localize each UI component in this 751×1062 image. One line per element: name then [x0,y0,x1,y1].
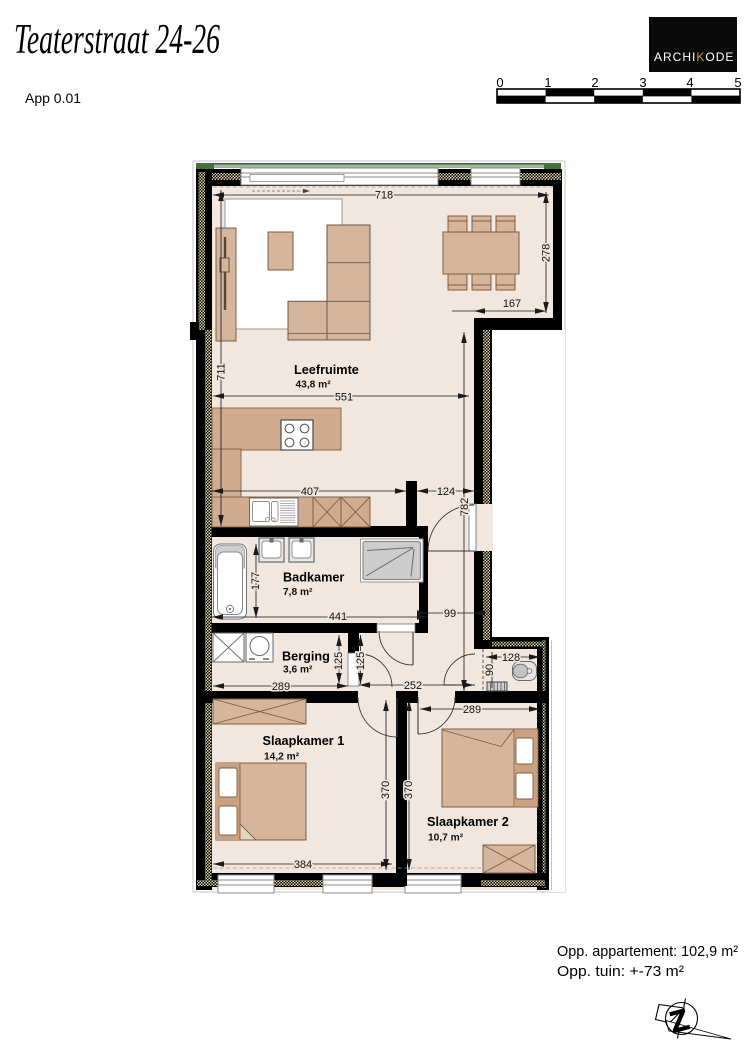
svg-text:124: 124 [437,486,455,498]
svg-text:177: 177 [250,572,262,590]
svg-text:0: 0 [496,75,503,90]
svg-text:252: 252 [404,680,422,692]
svg-text:407: 407 [301,486,319,498]
svg-text:Slaapkamer 1: Slaapkamer 1 [263,734,345,748]
svg-text:782: 782 [459,498,471,516]
svg-text:ARCHIKODE: ARCHIKODE [654,50,734,64]
svg-text:App 0.01: App 0.01 [25,90,81,106]
svg-text:125: 125 [333,652,345,670]
svg-text:99: 99 [444,608,456,620]
svg-text:7,8 m²: 7,8 m² [283,587,313,598]
svg-text:718: 718 [375,190,393,202]
svg-text:Opp. tuin: +-73 m²: Opp. tuin: +-73 m² [557,963,684,980]
svg-text:370: 370 [403,781,415,799]
svg-text:370: 370 [380,781,392,799]
svg-text:Z: Z [666,1003,692,1040]
svg-text:1: 1 [544,75,551,90]
svg-text:14,2 m²: 14,2 m² [264,752,300,763]
svg-text:711: 711 [216,363,228,381]
svg-text:Badkamer: Badkamer [283,571,344,585]
svg-text:5: 5 [734,75,741,90]
svg-text:Opp. appartement: 102,9 m²: Opp. appartement: 102,9 m² [557,943,738,960]
svg-text:90: 90 [484,664,496,676]
svg-text:128: 128 [502,652,520,664]
svg-text:125: 125 [355,652,367,670]
svg-text:167: 167 [503,298,521,310]
svg-text:Leefruimte: Leefruimte [294,363,359,377]
svg-text:4: 4 [686,75,693,90]
svg-text:Slaapkamer 2: Slaapkamer 2 [427,815,509,829]
svg-text:10,7 m²: 10,7 m² [428,833,464,844]
svg-text:441: 441 [329,611,347,623]
svg-text:3: 3 [639,75,646,90]
svg-text:278: 278 [541,244,553,262]
svg-text:551: 551 [335,392,353,404]
svg-text:Teaterstraat 24-26: Teaterstraat 24-26 [14,17,220,63]
svg-text:43,8 m²: 43,8 m² [296,380,332,391]
svg-text:289: 289 [463,704,481,716]
svg-text:384: 384 [294,859,312,871]
svg-text:3,6 m²: 3,6 m² [283,665,313,676]
svg-text:Berging: Berging [282,650,330,664]
svg-text:2: 2 [591,75,598,90]
svg-text:289: 289 [272,681,290,693]
